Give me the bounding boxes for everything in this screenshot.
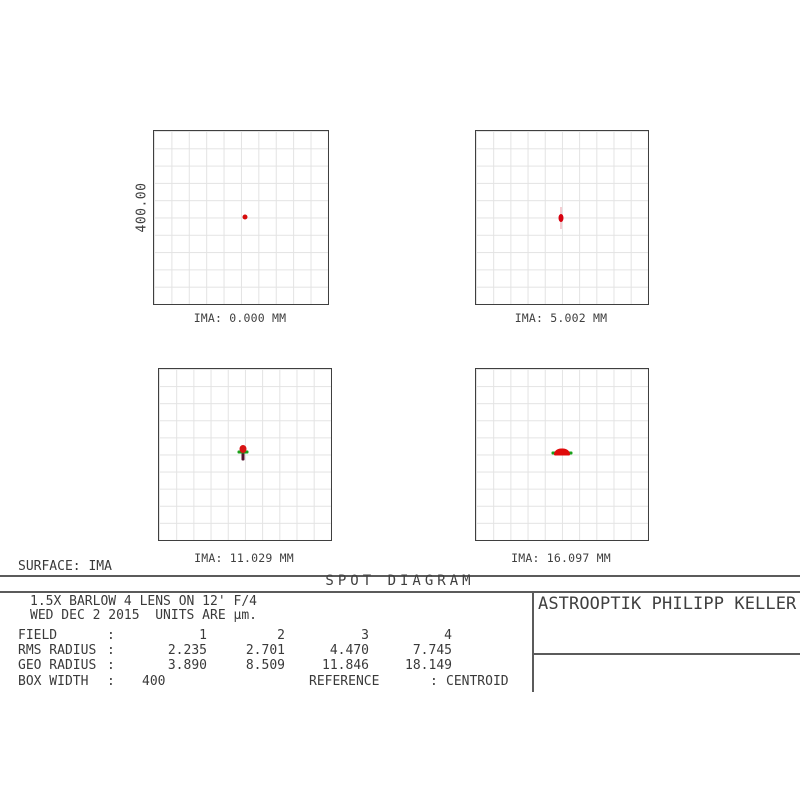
geo-field3: 11.846 [290,658,369,673]
row-colon: : [107,628,115,643]
row-colon: : [107,658,115,673]
chart-title: SPOT DIAGRAM [0,574,800,588]
geo-field4: 18.149 [375,658,452,673]
spot-field2-red-oval [559,214,564,222]
field-1-value: 1 [130,628,207,643]
row-label: GEO RADIUS [18,658,96,673]
field-2-value: 2 [210,628,285,643]
row-colon: : [107,674,115,689]
date-and-units: WED DEC 2 2015 UNITS ARE µm. [30,609,257,622]
geo-field1: 3.890 [130,658,207,673]
spot-diagram-page: 400.00 IMA: 0.000 MM IMA: 5.002 MM IMA: … [0,0,800,800]
spot-field3-red-blob [240,445,247,453]
row-label: BOX WIDTH [18,674,88,689]
rms-field3: 4.470 [290,643,369,658]
rms-field4: 7.745 [375,643,452,658]
spot-field1-red-dot [243,215,248,220]
horizontal-rule-mid [0,591,800,593]
box-width-value: 400 [142,674,165,689]
rms-field1: 2.235 [130,643,207,658]
lens-description: 1.5X BARLOW 4 LENS ON 12' F/4 [30,595,257,608]
horizontal-rule-right [532,653,800,655]
company-name: ASTROOPTIK PHILIPP KELLER [538,596,796,613]
panel-caption-field4: IMA: 16.097 MM [475,551,647,565]
table-row-rms-radius: RMS RADIUS : 2.235 2.701 4.470 7.745 [0,643,540,657]
y-scale-label: 400.00 [135,185,148,233]
reference-label: REFERENCE [309,674,379,689]
row-label: FIELD [18,628,57,643]
panel-caption-field3: IMA: 11.029 MM [158,551,330,565]
table-row-geo-radius: GEO RADIUS : 3.890 8.509 11.846 18.149 [0,658,540,672]
field-3-value: 3 [290,628,369,643]
rms-field2: 2.701 [210,643,285,658]
table-row-field: FIELD : 1 2 3 4 [0,628,540,642]
field-4-value: 4 [375,628,452,643]
table-row-box-width: BOX WIDTH : 400 REFERENCE : CENTROID [0,674,540,688]
row-label: RMS RADIUS [18,643,96,658]
reference-value: CENTROID [446,674,509,689]
row-colon: : [107,643,115,658]
panel-caption-field1: IMA: 0.000 MM [153,311,327,325]
reference-colon: : [430,674,438,689]
spot-panel-field3-grid [158,368,332,541]
surface-label: SURFACE: IMA [18,560,112,573]
geo-field2: 8.509 [210,658,285,673]
spot-panel-field1-grid [153,130,329,305]
panel-caption-field2: IMA: 5.002 MM [475,311,647,325]
spot-field4-red-dome [554,449,570,456]
